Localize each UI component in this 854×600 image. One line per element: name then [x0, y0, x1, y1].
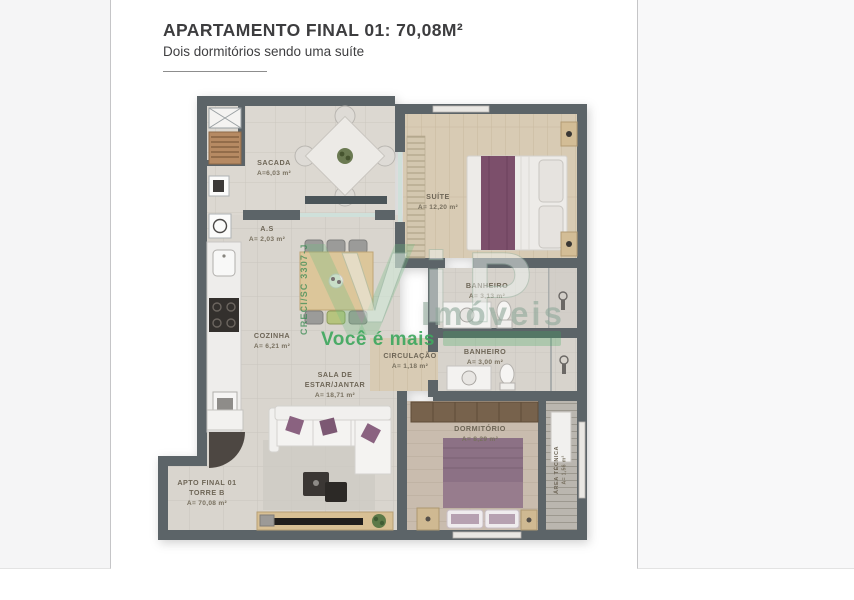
- tv-icon: [271, 518, 363, 525]
- label-circulacao: CIRCULAÇÃO: [383, 351, 436, 360]
- label-apto-1: APTO FINAL 01: [177, 478, 236, 487]
- label-circulacao-area: A= 1,18 m²: [392, 363, 429, 370]
- floorplan-svg: SACADA A=6,03 m² A.S A= 2,03 m² COZINHA …: [155, 92, 592, 542]
- blanket-edge: [443, 482, 523, 508]
- listing-content: APARTAMENTO FINAL 01: 70,08M² Dois dormi…: [111, 0, 637, 600]
- plant-leaf: [346, 156, 351, 161]
- label-cozinha: COZINHA: [254, 331, 290, 340]
- media-device: [260, 515, 274, 526]
- pillow-accent: [451, 514, 479, 524]
- lamp-icon: [527, 518, 532, 523]
- plant-leaf: [340, 152, 345, 157]
- suite-window: [433, 106, 489, 112]
- laundry-tank-basin: [213, 180, 224, 192]
- faucet-icon: [222, 254, 225, 257]
- label-apto-2: TORRE B: [189, 488, 225, 497]
- sink-icon: [462, 371, 476, 385]
- cooktop-icon: [209, 298, 239, 332]
- watermark-tagline-strip: [443, 331, 561, 346]
- label-sacada: SACADA: [257, 158, 291, 167]
- label-banheiro-social-area: A= 3,00 m²: [467, 359, 504, 366]
- appliance-door: [217, 398, 233, 410]
- entrance-cabinet: [207, 410, 243, 430]
- label-apto-area: A= 70,08 m²: [187, 500, 228, 507]
- label-sala-1: SALA DE: [318, 370, 353, 379]
- label-sacada-area: A=6,03 m²: [257, 170, 292, 177]
- watermark-subbrand: Imóveis: [421, 295, 565, 332]
- toilet-tank: [500, 383, 515, 390]
- label-cozinha-area: A= 6,21 m²: [254, 343, 291, 350]
- toilet-icon: [500, 364, 514, 384]
- label-banheiro-social: BANHEIRO: [464, 347, 506, 356]
- shower-stem: [562, 364, 566, 374]
- pillow-accent: [489, 514, 515, 524]
- washer-icon: [209, 214, 231, 238]
- wardrobe: [411, 402, 538, 422]
- label-as: A.S: [260, 224, 273, 233]
- label-area-tecnica-area: A= 1,56 m²: [562, 455, 568, 484]
- watermark-creci-group: CRECI/SC 3307-J: [299, 243, 309, 335]
- kitchen: [207, 214, 245, 468]
- lamp-icon: [426, 517, 431, 522]
- label-area-tecnica: ÁREA TÉCNICA: [552, 446, 560, 494]
- suite-pillow: [539, 160, 563, 202]
- page: APARTAMENTO FINAL 01: 70,08M² Dois dormi…: [0, 0, 854, 600]
- entry-floor: [163, 464, 202, 530]
- label-sala-area: A= 18,71 m²: [315, 392, 356, 399]
- table-decor: [313, 480, 319, 486]
- plant-leaf: [374, 517, 378, 521]
- title-underline: [163, 71, 267, 72]
- left-margin-panel: [0, 0, 111, 569]
- page-subtitle: Dois dormitórios sendo uma suíte: [163, 44, 364, 59]
- kitchen-sink-icon: [213, 250, 235, 276]
- coffee-table: [325, 482, 347, 502]
- watermark-tagline: Você é mais: [321, 329, 435, 350]
- balcony-bench: [305, 196, 387, 204]
- label-dormitorio-area: A= 8,29 m²: [462, 436, 499, 443]
- bedroom-bed: [443, 438, 523, 486]
- plant-leaf: [380, 521, 384, 525]
- bedroom-window: [453, 532, 521, 538]
- page-title: APARTAMENTO FINAL 01: 70,08M²: [163, 20, 463, 41]
- lamp-icon: [566, 241, 572, 247]
- lamp-icon: [566, 131, 572, 137]
- label-as-area: A= 2,03 m²: [249, 236, 286, 243]
- label-suite: SUÍTE: [426, 192, 450, 201]
- right-margin-panel: [637, 0, 854, 569]
- plant-icon: [337, 148, 353, 164]
- tech-window: [579, 422, 585, 498]
- label-dormitorio: DORMITÓRIO: [454, 424, 506, 433]
- label-sala-2: ESTAR/JANTAR: [305, 380, 366, 389]
- plant-icon: [372, 514, 386, 528]
- label-suite-area: A= 12,20 m²: [418, 204, 459, 211]
- watermark-creci: CRECI/SC 3307-J: [299, 243, 309, 335]
